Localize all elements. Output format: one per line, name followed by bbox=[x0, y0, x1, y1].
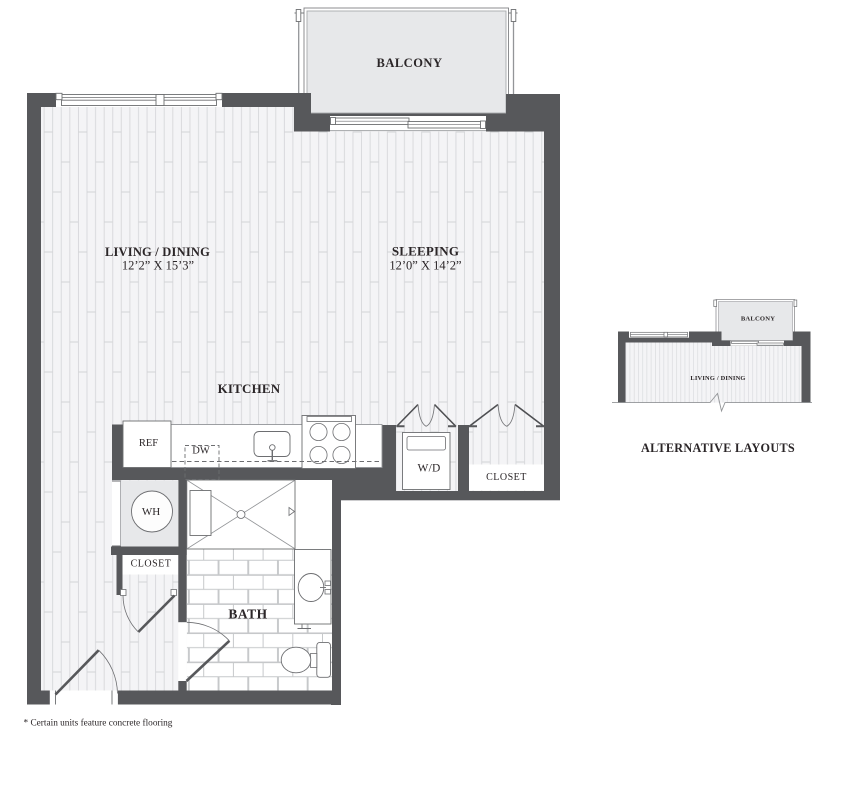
svg-text:BATH: BATH bbox=[228, 607, 267, 622]
svg-text:12’0” X 14’2”: 12’0” X 14’2” bbox=[389, 259, 461, 273]
svg-text:KITCHEN: KITCHEN bbox=[218, 381, 281, 396]
svg-text:LIVING / DINING: LIVING / DINING bbox=[690, 375, 745, 382]
svg-text:CLOSET: CLOSET bbox=[486, 472, 527, 483]
svg-text:SLEEPING: SLEEPING bbox=[392, 244, 459, 259]
svg-text:CLOSET: CLOSET bbox=[131, 559, 172, 570]
svg-text:12’2” X 15’3”: 12’2” X 15’3” bbox=[122, 259, 194, 273]
svg-text:WH: WH bbox=[142, 506, 160, 518]
svg-text:BALCONY: BALCONY bbox=[376, 56, 442, 70]
svg-text:ALTERNATIVE LAYOUTS: ALTERNATIVE LAYOUTS bbox=[641, 441, 795, 455]
svg-text:W/D: W/D bbox=[418, 463, 441, 475]
svg-text:REF: REF bbox=[139, 438, 158, 449]
svg-text:* Certain units feature concre: * Certain units feature concrete floorin… bbox=[24, 717, 173, 728]
svg-text:BALCONY: BALCONY bbox=[741, 316, 775, 323]
svg-text:DW: DW bbox=[192, 446, 210, 457]
svg-text:LIVING / DINING: LIVING / DINING bbox=[105, 245, 210, 259]
